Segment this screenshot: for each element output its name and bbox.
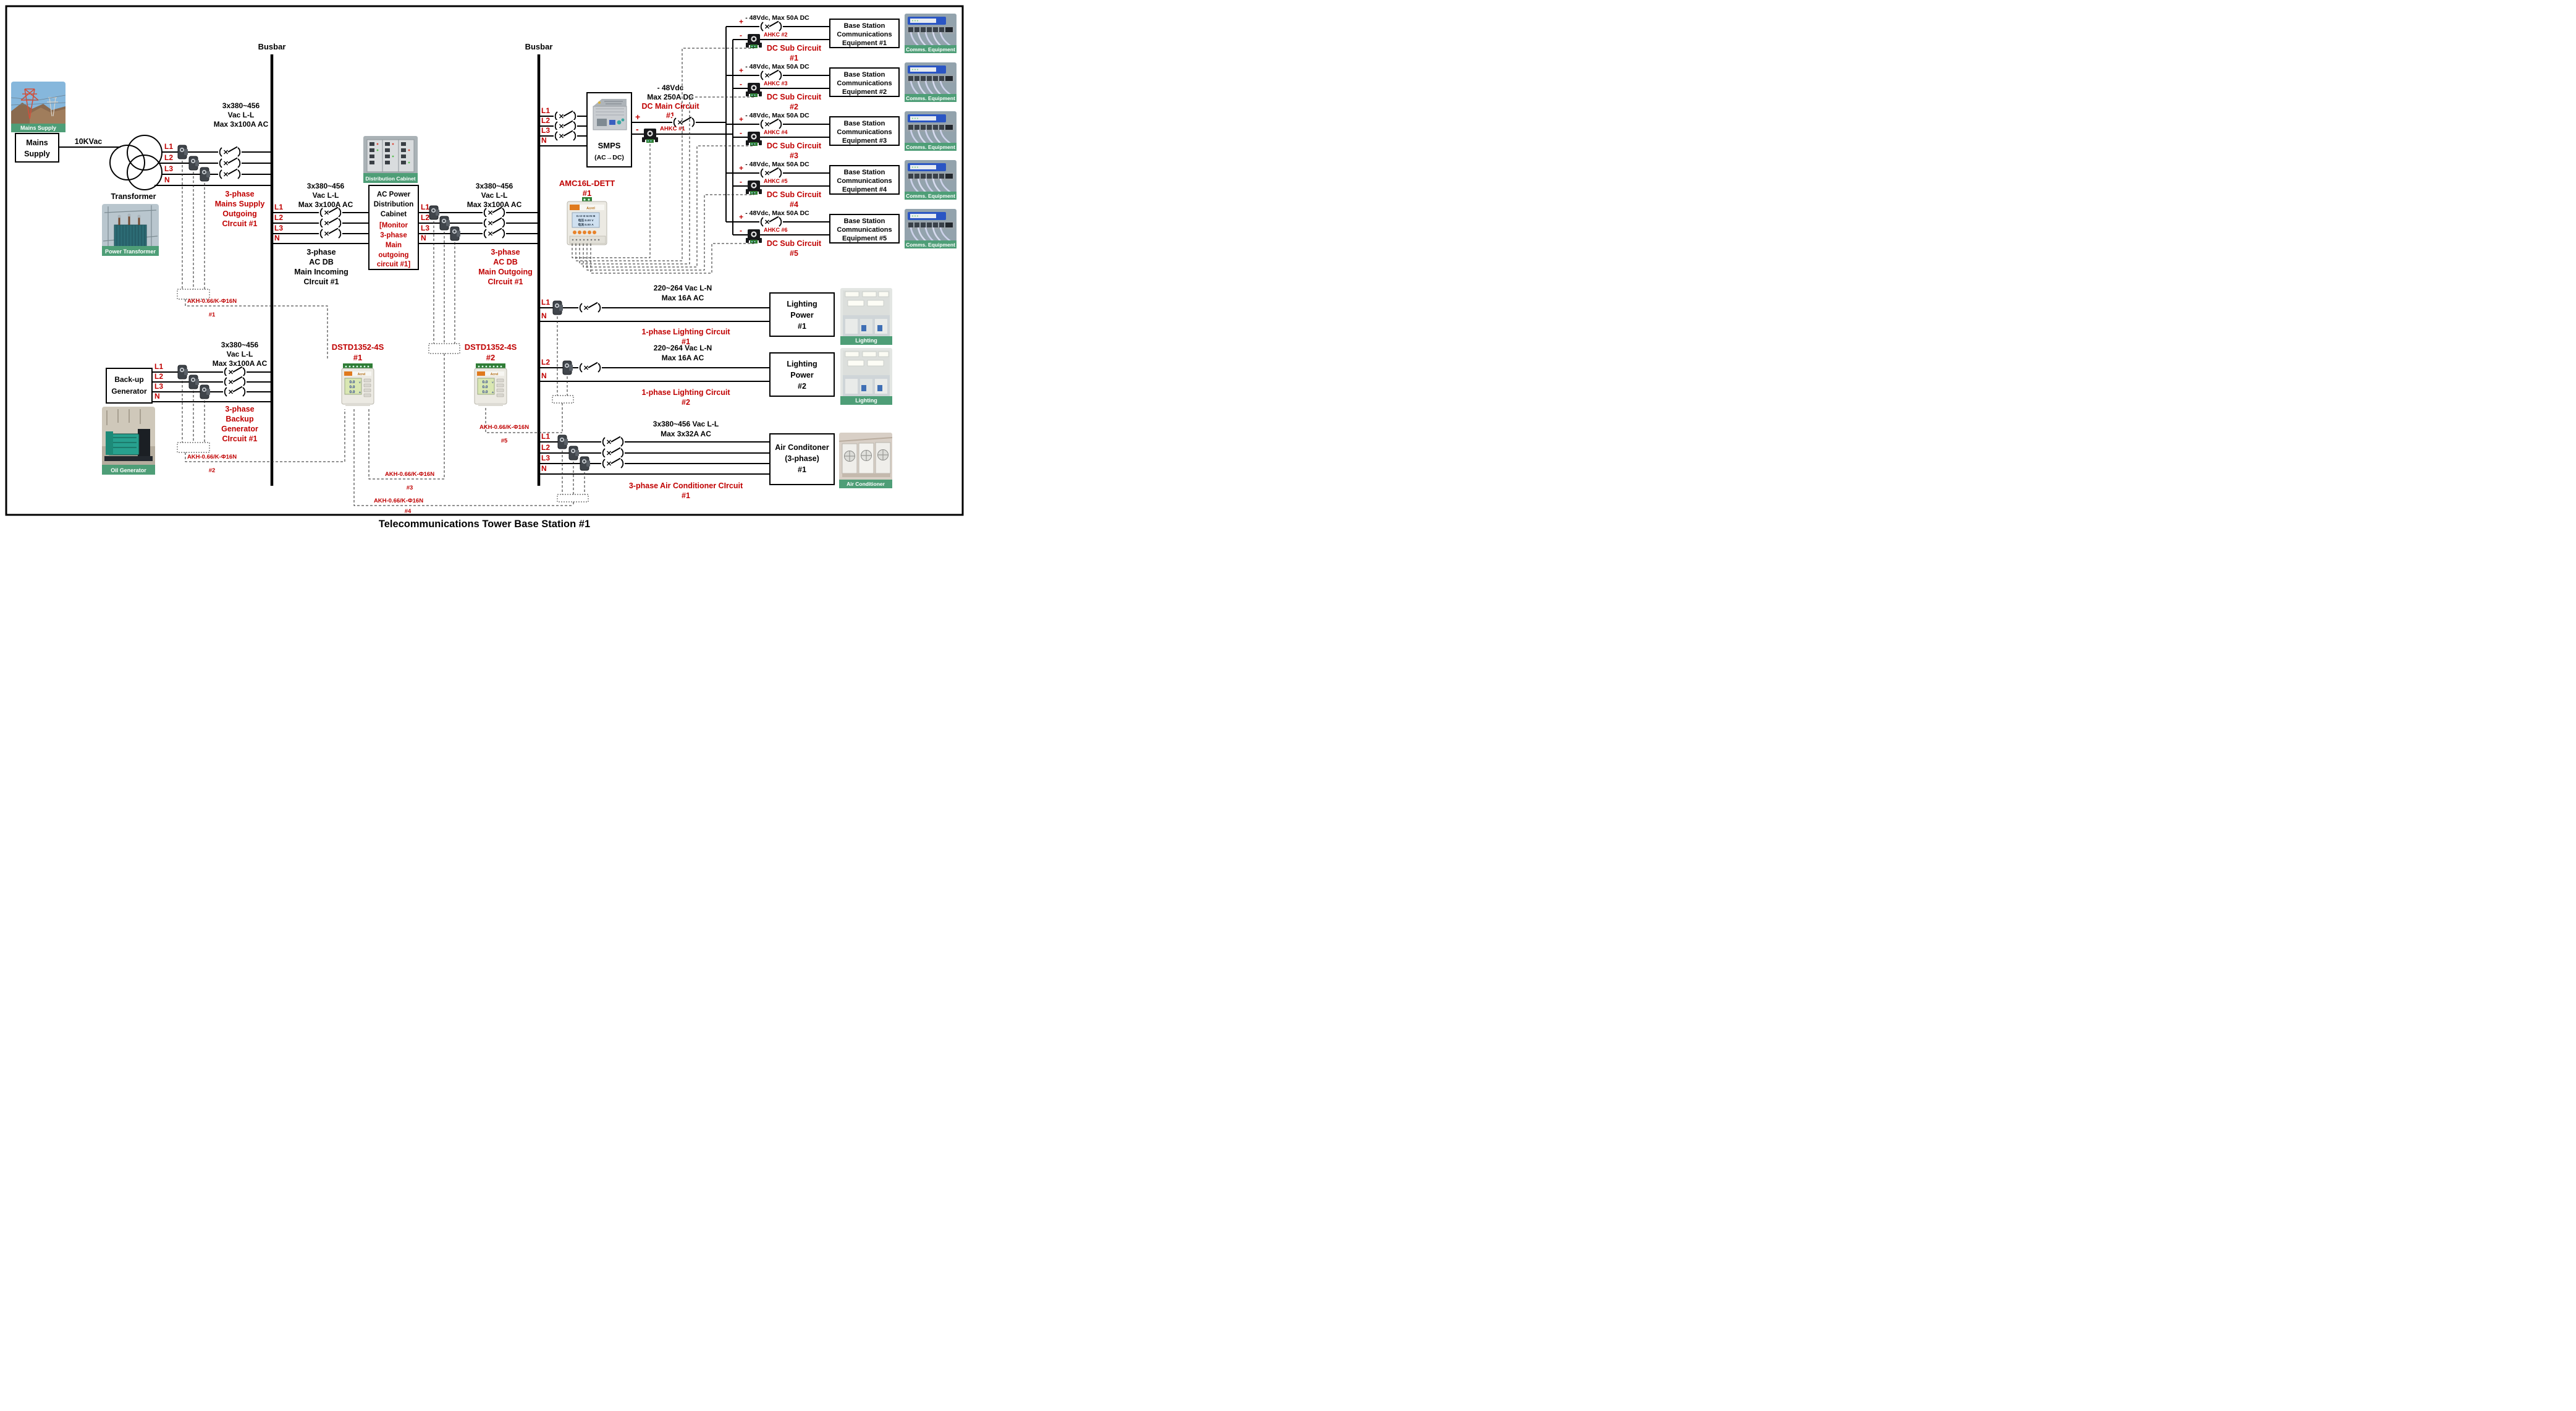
mains-circuit-2: Mains Supply [215,200,265,208]
power-transformer-photo: Power Transformer [102,204,159,256]
sub2-circuit-1: DC Sub Circuit [767,93,822,101]
gen-circuit-2: Backup [226,415,254,423]
acdbout-breaker-l3 [483,227,506,240]
light1-neutral: N [541,311,547,320]
sub5-breaker [759,216,783,228]
sub4-eq-2: Communications [837,177,892,185]
ac-rating-2: Max 3x32A AC [661,430,711,438]
light1-box-3: #1 [798,322,806,331]
light2-photo [840,348,892,405]
sub5-eq-3: Equipment #5 [842,235,887,242]
amc-brand: Acrel [586,207,595,211]
ahkc-sensor-1 [642,129,658,143]
light1-rating-1: 220~264 Vac L-N [654,284,712,292]
mains-box-line2: Supply [24,150,50,158]
sub4-plus: + [739,164,743,172]
sub5-rating: - 48Vdc, Max 50A DC [745,210,809,217]
gen-ct-l1 [178,365,188,379]
aircon-photo-caption: Air Conditioner [847,481,885,487]
sub3-sensor-label: AHKC #4 [764,129,788,135]
sub3-minus: - [740,129,742,137]
light2-rating-1: 220~264 Vac L-N [654,344,712,352]
sub2-minus: - [740,80,742,88]
smps-photo [593,99,627,130]
light2-ct [563,361,573,375]
sub3-breaker [759,118,783,130]
dc-main-circuit-1: DC Main Circuit [641,102,699,111]
acdbout-circuit-1: 3-phase [491,248,520,256]
light2-circuit-2: #2 [682,398,690,407]
gen-phase-l3: L3 [154,382,163,391]
mains-phase-l1: L1 [164,142,173,151]
acdbout-rating-2: Vac L-L [481,191,508,200]
sub2-rating: - 48Vdc, Max 50A DC [745,63,809,70]
sub5-circuit-1: DC Sub Circuit [767,239,822,248]
gen-phase-n: N [154,392,160,400]
sub3-plus: + [739,115,743,124]
acdbout-phase-n: N [421,234,426,242]
acdbin-rating-2: Vac L-L [313,191,339,200]
light1-photo [840,288,892,345]
mains-phase-l2: L2 [164,153,173,162]
amc-lcd-row3: 电流:0.00 A [578,222,594,227]
mains-rating-2: Vac L-L [228,111,255,119]
acdbout-ct-l1 [429,206,439,219]
mains-box-line1: Mains [26,138,48,147]
light1-ct [553,301,563,315]
mains-breaker-l2 [218,157,242,169]
sub5-eq-1: Base Station [844,218,885,225]
mains-ct-l3 [200,167,210,181]
acdbout-circuit-2: AC DB [493,258,518,266]
acdbin-circuit-3: Main Incoming [294,268,348,276]
dstd1-number-label: #1 [353,353,362,362]
acdbin-phase-l3: L3 [274,224,283,232]
sub3-rating: - 48Vdc, Max 50A DC [745,112,809,119]
akh3-label: AKH-0.66/K-Φ16N [385,471,434,478]
ac-phase-l2: L2 [541,443,550,452]
akh4-num: #4 [405,508,412,515]
mains-circuit-4: CIrcuit #1 [222,219,258,228]
cabinet-section: Distribution Cabinet AC Power Distributi… [363,136,418,269]
smps-phase-l2: L2 [541,116,550,125]
mains-phase-l3: L3 [164,164,173,173]
light2-neutral: N [541,371,547,380]
distribution-cabinet-photo: Distribution Cabinet [363,136,418,183]
sub1-circuit-2: #1 [790,54,798,62]
light2-phase: L2 [541,358,550,367]
sub1-eq-2: Communications [837,31,892,38]
sub5-sensor-label: AHKC #6 [764,227,788,233]
mains-voltage-label: 10KVac [75,137,103,146]
light2-rating-2: Max 16A AC [662,354,704,362]
gen-circuit-1: 3-phase [225,405,254,413]
cabinet-note-2: 3-phase [380,232,407,239]
ac-phase-n: N [541,464,547,473]
ac-box-2: (3-phase) [785,454,819,463]
gen-circuit-4: CIrcuit #1 [222,434,258,443]
sub2-sensor-label: AHKC #3 [764,80,788,87]
diagram-title: Telecommunications Tower Base Station #1 [379,519,590,530]
ahkc-sensor-5 [746,180,762,195]
acdbout-rating-3: Max 3x100A AC [467,200,522,209]
ac-phase-l1: L1 [541,432,550,441]
light1-rating-2: Max 16A AC [662,294,704,302]
sub1-circuit-1: DC Sub Circuit [767,44,822,53]
dc-main-plus: + [635,112,640,122]
sub5-eq-2: Communications [837,226,892,234]
acdbout-phase-l3: L3 [421,224,429,232]
gen-phase-l2: L2 [154,372,163,381]
ac-box-3: #1 [798,465,806,474]
akh1-label: AKH-0.66/K-Φ16N [187,298,237,305]
akh2-num: #2 [209,467,216,474]
cabinet-name-1: AC Power [377,191,411,198]
sub2-breaker [759,69,783,82]
light2-breaker [578,362,602,374]
smps-label-1: SMPS [598,141,621,150]
sub1-minus: - [740,31,742,40]
sub2-circuit-2: #2 [790,103,798,111]
acdbin-circuit-4: CIrcuit #1 [304,278,339,286]
sub1-rating: - 48Vdc, Max 50A DC [745,14,809,22]
mains-supply-photo: Mains Supply [11,82,65,132]
gen-phase-l1: L1 [154,362,163,371]
ac-box-1: Air Conditoner [775,443,829,452]
acdbin-rating-1: 3x380~456 [307,182,345,190]
dstd2-number-label: #2 [486,353,495,362]
light2-circuit-1: 1-phase Lighting Circuit [641,388,730,397]
distribution-cabinet-photo-caption: Distribution Cabinet [365,176,415,182]
sub3-eq-2: Communications [837,129,892,136]
acdbout-circuit-3: Main Outgoing [478,268,532,276]
diagram-canvas: Acrel 0.0 0.0 0.0 V A Comms. Equipment [0,0,969,530]
gen-rating-1: 3x380~456 [221,341,259,349]
ac-rating-1: 3x380~456 Vac L-L [653,420,719,428]
generator-box-line1: Back-up [114,375,143,384]
mains-photo-caption: Mains Supply [20,125,56,131]
smps-label-2: (AC→DC) [594,154,624,161]
ahkc-sensor-4 [746,132,762,146]
acdbin-phase-l2: L2 [274,213,283,222]
akh4-label: AKH-0.66/K-Φ16N [374,498,423,504]
sub3-circuit-2: #3 [790,151,798,160]
acdbout-ct-l2 [440,216,450,230]
sub5-plus: + [739,213,743,221]
ac-circuit-1: 3-phase Air Conditioner CIrcuit [629,481,743,490]
ahkc-sensor-6 [746,229,762,244]
light1-circuit-1: 1-phase Lighting Circuit [641,328,730,336]
sub5-comms-photo [905,209,956,248]
sub1-plus: + [739,17,743,26]
light1-box-1: Lighting [787,300,817,308]
light2-box-2: Power [790,371,814,379]
dstd2-model-label: DSTD1352-4S [465,342,517,352]
gen-circuit-3: Generator [221,425,258,433]
sub2-eq-2: Communications [837,80,892,87]
acdbin-circuit-2: AC DB [309,258,334,266]
sub2-eq-3: Equipment #2 [842,88,887,96]
oil-generator-photo: Oil Generator [102,407,155,475]
amc-lcd-row2: 电压:0.00 V [578,218,594,222]
dc-main-rating-1: - 48Vdc [657,83,684,92]
ahkc-1-label: AHKC #1 [660,125,685,132]
akh5-label: AKH-0.66/K-Φ16N [479,424,529,431]
generator-box [106,368,152,403]
sub4-circuit-1: DC Sub Circuit [767,190,822,199]
sub4-eq-1: Base Station [844,169,885,176]
aircon-photo: Air Conditioner [839,433,892,488]
power-transformer-photo-caption: Power Transformer [105,248,156,255]
sub2-eq-1: Base Station [844,71,885,78]
mains-phase-n: N [164,176,170,184]
akh2-label: AKH-0.66/K-Φ16N [187,454,237,460]
sub4-circuit-2: #4 [790,200,798,209]
sub1-comms-photo [905,14,956,53]
amc-lcd-row1: I1 I2 I3 I4 I5 I6 [576,214,596,218]
acdbin-breaker-l3 [319,227,342,240]
smps-breaker-l3 [554,130,577,142]
light1-box-2: Power [790,311,814,320]
amc-model-label: AMC16L-DETT [559,179,615,188]
mains-ct-l2 [189,156,199,170]
sub5-minus: - [740,226,742,235]
mains-breaker-l3 [218,168,242,180]
mains-rating-3: Max 3x100A AC [214,120,269,129]
acdbin-phase-n: N [274,234,280,242]
acdbout-circuit-4: CIrcuit #1 [488,278,523,286]
smps-phase-l1: L1 [541,106,550,115]
sub4-rating: - 48Vdc, Max 50A DC [745,161,809,168]
cabinet-note-1: [Monitor [379,222,408,229]
sub1-eq-3: Equipment #1 [842,40,887,47]
sub4-breaker [759,167,783,179]
sub3-comms-photo [905,111,956,151]
akh3-num: #3 [407,485,413,491]
light2-box-1: Lighting [787,360,817,368]
light1-phase: L1 [541,298,550,307]
single-line-diagram-page: Acrel 0.0 0.0 0.0 V A Comms. Equipment [0,0,969,530]
cabinet-note-4: outgoing [378,252,408,259]
dc-main-minus: - [636,124,639,134]
cabinet-name-3: Cabinet [381,211,407,218]
mains-rating-1: 3x380~456 [222,101,260,110]
akh1-num: #1 [209,311,216,318]
dstd1-model-label: DSTD1352-4S [332,342,384,352]
sub2-comms-photo [905,62,956,102]
cabinet-name-2: Distribution [374,201,414,208]
busbar-left-label: Busbar [258,42,286,51]
ahkc-sensor-2 [746,34,762,48]
acdbout-ct-l3 [450,227,460,240]
gen-ct-l3 [200,385,210,399]
sub3-eq-3: Equipment #3 [842,137,887,145]
amc-number-label: #1 [583,189,591,198]
mains-breaker-l1 [218,146,242,158]
sub4-comms-photo [905,160,956,200]
sub4-minus: - [740,177,742,186]
gen-breaker-l3 [223,386,247,398]
ac-ct-l1 [558,435,568,449]
acdbout-phase-l1: L1 [421,203,429,211]
ac-circuit-2: #1 [682,491,690,500]
acdbout-phase-l2: L2 [421,213,429,222]
gen-rating-3: Max 3x100A AC [213,359,268,368]
ac-breaker-l3 [601,457,625,470]
cabinet-note-5: circuit #1] [377,261,410,268]
sub1-breaker [759,20,783,33]
sub3-circuit-1: DC Sub Circuit [767,142,822,150]
smps-phase-l3: L3 [541,126,550,135]
ac-phase-l3: L3 [541,454,550,462]
cabinet-note-3: Main [386,242,402,249]
mains-circuit-1: 3-phase [225,190,254,198]
light1-breaker [578,302,602,314]
transformer-label: Transformer [111,192,156,201]
acdbout-rating-1: 3x380~456 [476,182,513,190]
light2-box-3: #2 [798,382,806,391]
generator-box-line2: Generator [111,387,147,396]
sub1-sensor-label: AHKC #2 [764,32,788,38]
oil-generator-photo-caption: Oil Generator [111,467,146,473]
sub4-sensor-label: AHKC #5 [764,178,788,184]
dc-main-rating-2: Max 250A DC [647,93,694,101]
gen-ct-l2 [189,375,199,389]
acdbin-circuit-1: 3-phase [306,248,336,256]
acdbin-rating-3: Max 3x100A AC [298,200,353,209]
ac-ct-l2 [569,446,579,460]
mains-ct-l1 [178,145,188,159]
acdbin-phase-l1: L1 [274,203,283,211]
smps-phase-n: N [541,136,547,145]
ahkc-sensor-3 [746,83,762,97]
sub2-plus: + [739,66,743,75]
ac-ct-l3 [580,457,590,470]
ac-breaker-l1 [601,436,625,448]
akh5-num: #5 [501,438,508,444]
mains-circuit-3: Outgoing [222,210,257,218]
sub3-eq-1: Base Station [844,120,885,127]
sub1-eq-1: Base Station [844,22,885,30]
busbar-right-label: Busbar [525,42,553,51]
gen-rating-2: Vac L-L [227,350,253,358]
sub5-circuit-2: #5 [790,249,798,258]
sub4-eq-3: Equipment #4 [842,186,887,193]
